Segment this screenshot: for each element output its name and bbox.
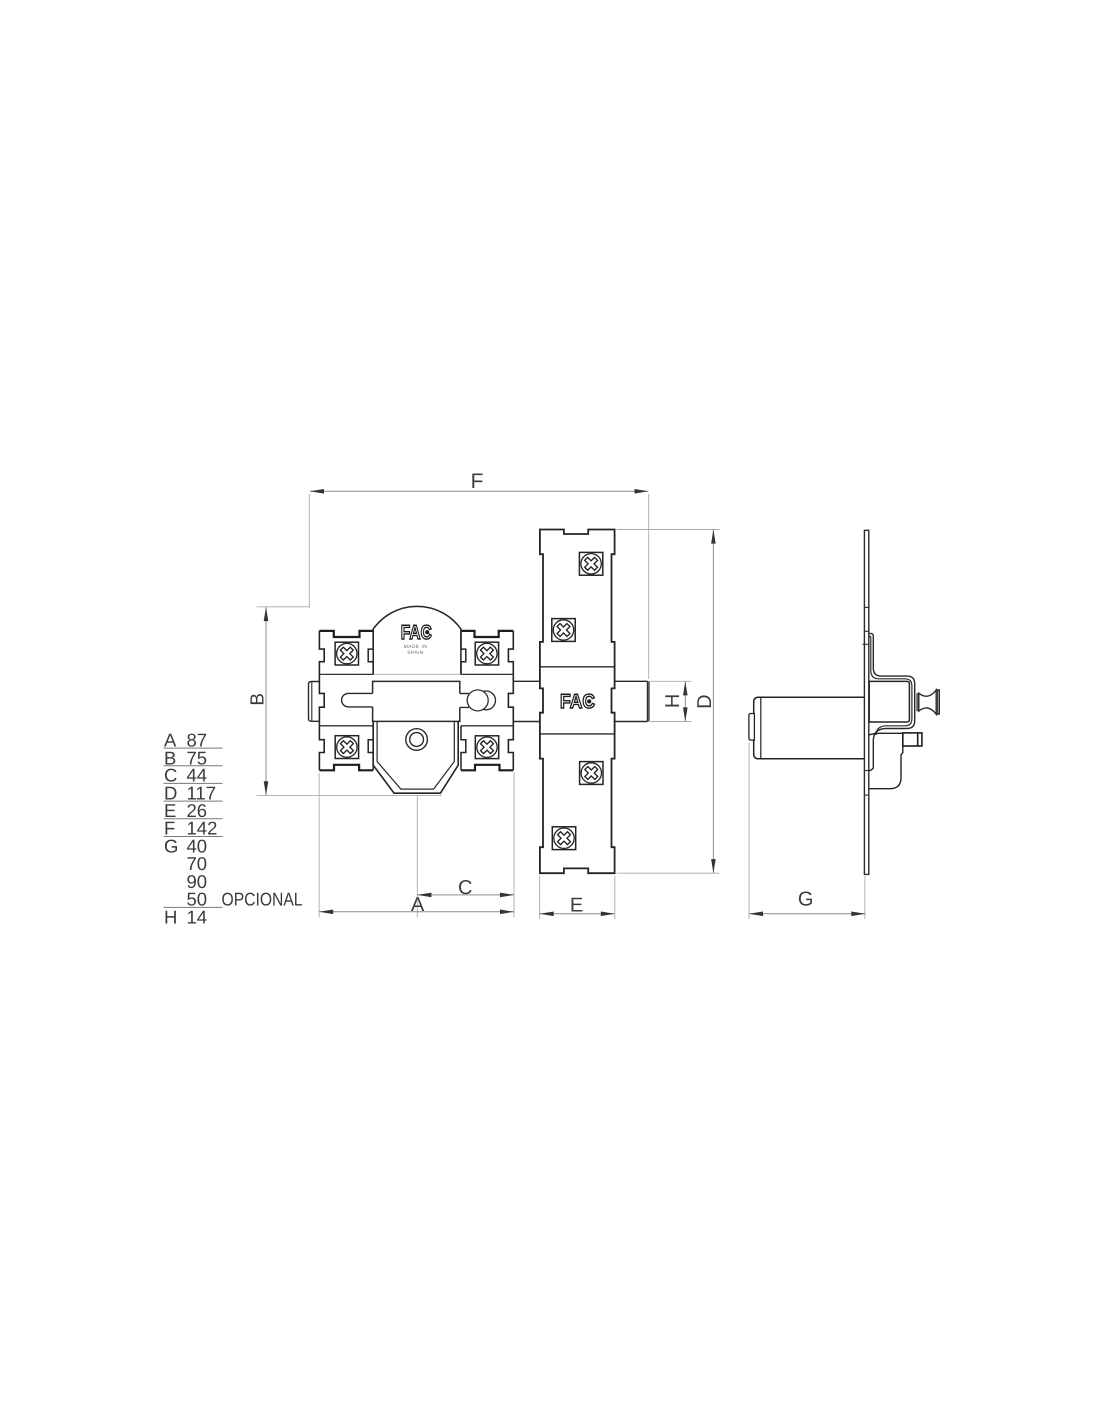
svg-text:A: A <box>411 894 425 916</box>
svg-text:E: E <box>570 894 583 916</box>
svg-text:OPCIONAL: OPCIONAL <box>222 889 303 910</box>
svg-text:F: F <box>471 470 484 493</box>
svg-text:SPAIN: SPAIN <box>407 650 424 656</box>
svg-text:14: 14 <box>187 906 208 927</box>
svg-text:C: C <box>458 877 472 899</box>
svg-text:D: D <box>694 694 716 708</box>
svg-text:H: H <box>164 906 177 927</box>
svg-text:H: H <box>662 694 684 708</box>
svg-text:B: B <box>248 693 269 706</box>
svg-text:MADE IN: MADE IN <box>404 644 428 650</box>
svg-text:G: G <box>798 888 814 910</box>
svg-text:G: G <box>164 835 178 856</box>
